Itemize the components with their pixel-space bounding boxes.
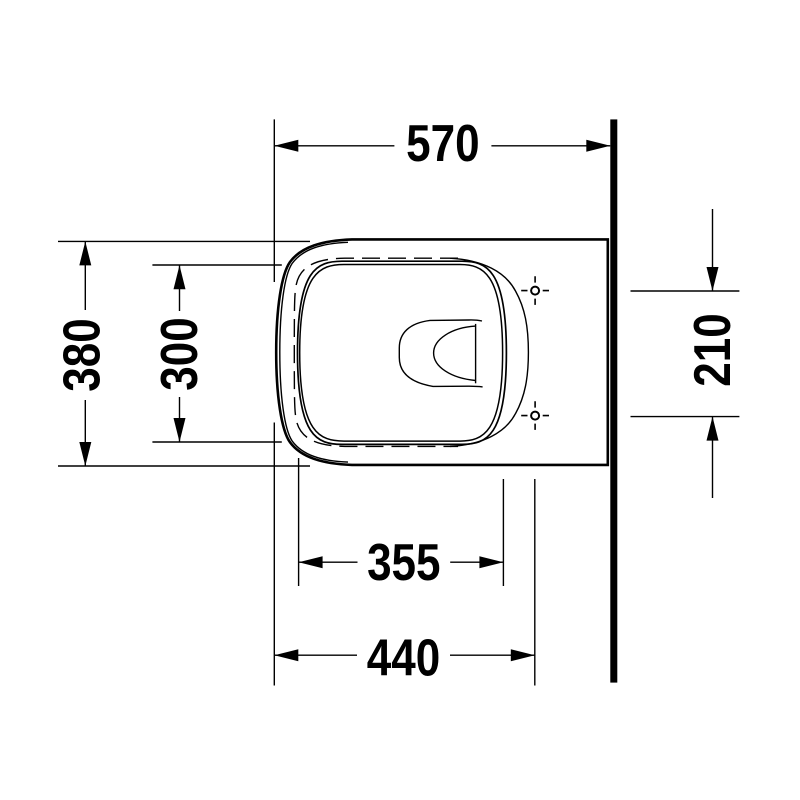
svg-text:380: 380: [55, 318, 112, 391]
svg-text:355: 355: [367, 535, 440, 592]
svg-text:210: 210: [685, 313, 742, 386]
svg-text:570: 570: [406, 116, 479, 173]
svg-text:440: 440: [367, 630, 440, 687]
svg-text:300: 300: [152, 317, 209, 390]
